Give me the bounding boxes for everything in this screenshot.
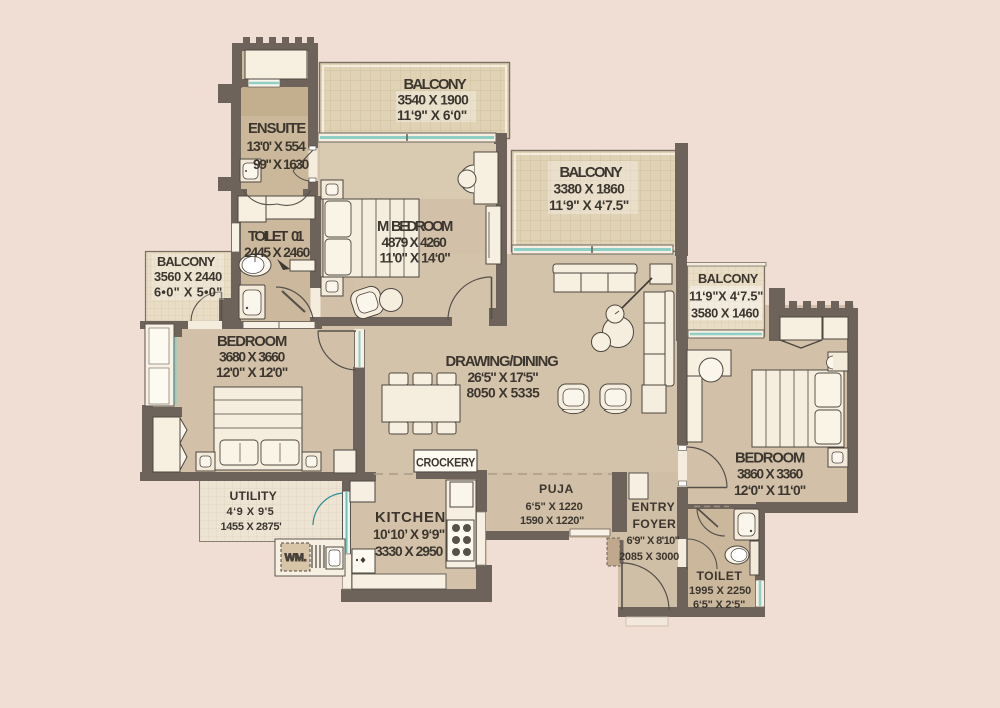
svg-text:1995 X 2250: 1995 X 2250 <box>689 585 751 597</box>
svg-text:KITCHEN: KITCHEN <box>375 510 445 526</box>
svg-text:DRAWING/DINING: DRAWING/DINING <box>446 354 559 370</box>
svg-text:3560 X 2440: 3560 X 2440 <box>154 269 222 284</box>
svg-text:3860 X 3360: 3860 X 3360 <box>737 467 804 482</box>
svg-text:TOILET: TOILET <box>697 569 743 583</box>
svg-text:8050 X 5335: 8050 X 5335 <box>467 386 541 401</box>
svg-text:PUJA: PUJA <box>539 482 573 496</box>
svg-text:TOILET: TOILET <box>248 229 288 245</box>
svg-text:WM.: WM. <box>285 552 307 564</box>
svg-text:3580 X 1460: 3580 X 1460 <box>691 306 759 321</box>
svg-text:11‘9" X 6‘0": 11‘9" X 6‘0" <box>397 108 467 123</box>
svg-text:M: M <box>377 219 389 235</box>
svg-text:CROCKERY: CROCKERY <box>416 458 476 470</box>
svg-text:UTILITY: UTILITY <box>230 489 277 503</box>
svg-text:FOYER: FOYER <box>633 517 676 531</box>
svg-text:3330 X 2950: 3330 X 2950 <box>375 544 444 559</box>
svg-text:11‘9" X 4‘7.5": 11‘9" X 4‘7.5" <box>549 198 629 213</box>
svg-text:ENTRY: ENTRY <box>632 500 675 514</box>
svg-text:6•0" X 5•0": 6•0" X 5•0" <box>154 285 222 300</box>
svg-text:26‘5" X 17‘5": 26‘5" X 17‘5" <box>468 370 539 385</box>
svg-text:4879 X 4260: 4879 X 4260 <box>382 235 448 250</box>
svg-text:BALCONY: BALCONY <box>698 271 759 286</box>
svg-text:13'0' X 554: 13'0' X 554 <box>247 139 307 154</box>
svg-text:4‘9 X 9'5: 4‘9 X 9'5 <box>227 506 274 518</box>
svg-text:BEDROOM: BEDROOM <box>735 451 805 467</box>
svg-text:BALCONY: BALCONY <box>157 254 216 269</box>
svg-text:BEDROOM: BEDROOM <box>217 334 287 350</box>
svg-text:6‘5" X 1220: 6‘5" X 1220 <box>526 501 583 513</box>
svg-text:ENSUITE: ENSUITE <box>248 121 306 137</box>
svg-text:11‘9"X 4‘7.5": 11‘9"X 4‘7.5" <box>689 289 763 304</box>
svg-text:BALCONY: BALCONY <box>560 165 623 181</box>
svg-text:6‘5" X 2‘5": 6‘5" X 2‘5" <box>693 599 745 611</box>
svg-text:BEDROOM: BEDROOM <box>391 219 453 235</box>
svg-text:12‘0" X 11‘0": 12‘0" X 11‘0" <box>734 483 806 498</box>
svg-text:10‘10’ X 9‘9": 10‘10’ X 9‘9" <box>373 527 445 542</box>
svg-text:1455 X 2875': 1455 X 2875' <box>221 521 283 533</box>
svg-text:6‘9" X 8'10": 6‘9" X 8'10" <box>627 535 680 547</box>
svg-text:3680 X 3660: 3680 X 3660 <box>219 350 286 365</box>
svg-text:12'0" X 12'0": 12'0" X 12'0" <box>216 365 288 380</box>
svg-text:01: 01 <box>291 229 304 245</box>
svg-text:11'0" X 14‘0": 11'0" X 14‘0" <box>380 251 451 266</box>
svg-text:1590 X 1220": 1590 X 1220" <box>520 515 584 527</box>
svg-text:3540 X 1900: 3540 X 1900 <box>398 93 470 108</box>
svg-text:2445 X 2460: 2445 X 2460 <box>244 245 311 260</box>
svg-text:2085 X 3000: 2085 X 3000 <box>619 551 679 563</box>
svg-text:BALCONY: BALCONY <box>404 77 467 93</box>
svg-text:99" X 1630: 99" X 1630 <box>253 157 310 172</box>
svg-text:3380 X 1860: 3380 X 1860 <box>554 182 626 197</box>
